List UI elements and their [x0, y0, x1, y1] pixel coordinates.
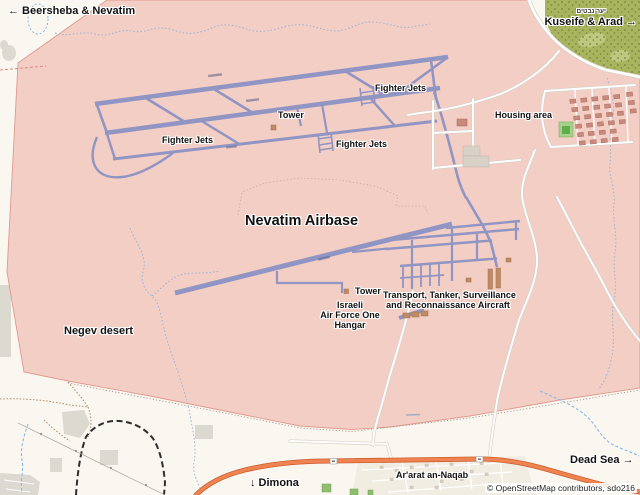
forest-hebrew-label: יער נבטים [577, 8, 606, 15]
direction-label-kuseife: Kuseife & Arad → [544, 16, 637, 28]
hangar-line1: Israeli [305, 300, 395, 310]
direction-label-beersheba: ← Beersheba & Nevatim [8, 5, 135, 17]
label-fighter-jets-northeast: Fighter Jets [375, 83, 426, 93]
osm-attribution: © OpenStreetMap contributors, sdo216 [485, 483, 637, 493]
label-ararat-town: Ar'arat an-Naqab [396, 470, 468, 480]
label-negev-desert: Negev desert [64, 325, 133, 337]
label-iaf-one-hangar: Israeli Air Force One Hangar [305, 300, 395, 330]
transport-line2: and Reconnaissance Aircraft [383, 300, 513, 310]
map-canvas[interactable]: ← Beersheba & Nevatim Kuseife & Arad → י… [0, 0, 640, 495]
hangar-line3: Hangar [305, 320, 395, 330]
label-housing-area: Housing area [495, 110, 552, 120]
map-artwork [0, 0, 640, 495]
label-tower-south: Tower [355, 286, 381, 296]
label-base-title: Nevatim Airbase [245, 213, 358, 229]
hangar-line2: Air Force One [305, 310, 395, 320]
label-tower-north: Tower [278, 110, 304, 120]
direction-label-dimona: ↓ Dimona [250, 477, 299, 489]
label-fighter-jets-west: Fighter Jets [162, 135, 213, 145]
label-fighter-jets-center: Fighter Jets [336, 139, 387, 149]
direction-label-dead-sea: Dead Sea → [570, 454, 634, 466]
south-tower-building [344, 289, 349, 294]
transport-line1: Transport, Tanker, Surveillance [383, 290, 513, 300]
label-transport-aircraft: Transport, Tanker, Surveillance and Reco… [383, 290, 513, 310]
north-tower-building [271, 125, 276, 130]
